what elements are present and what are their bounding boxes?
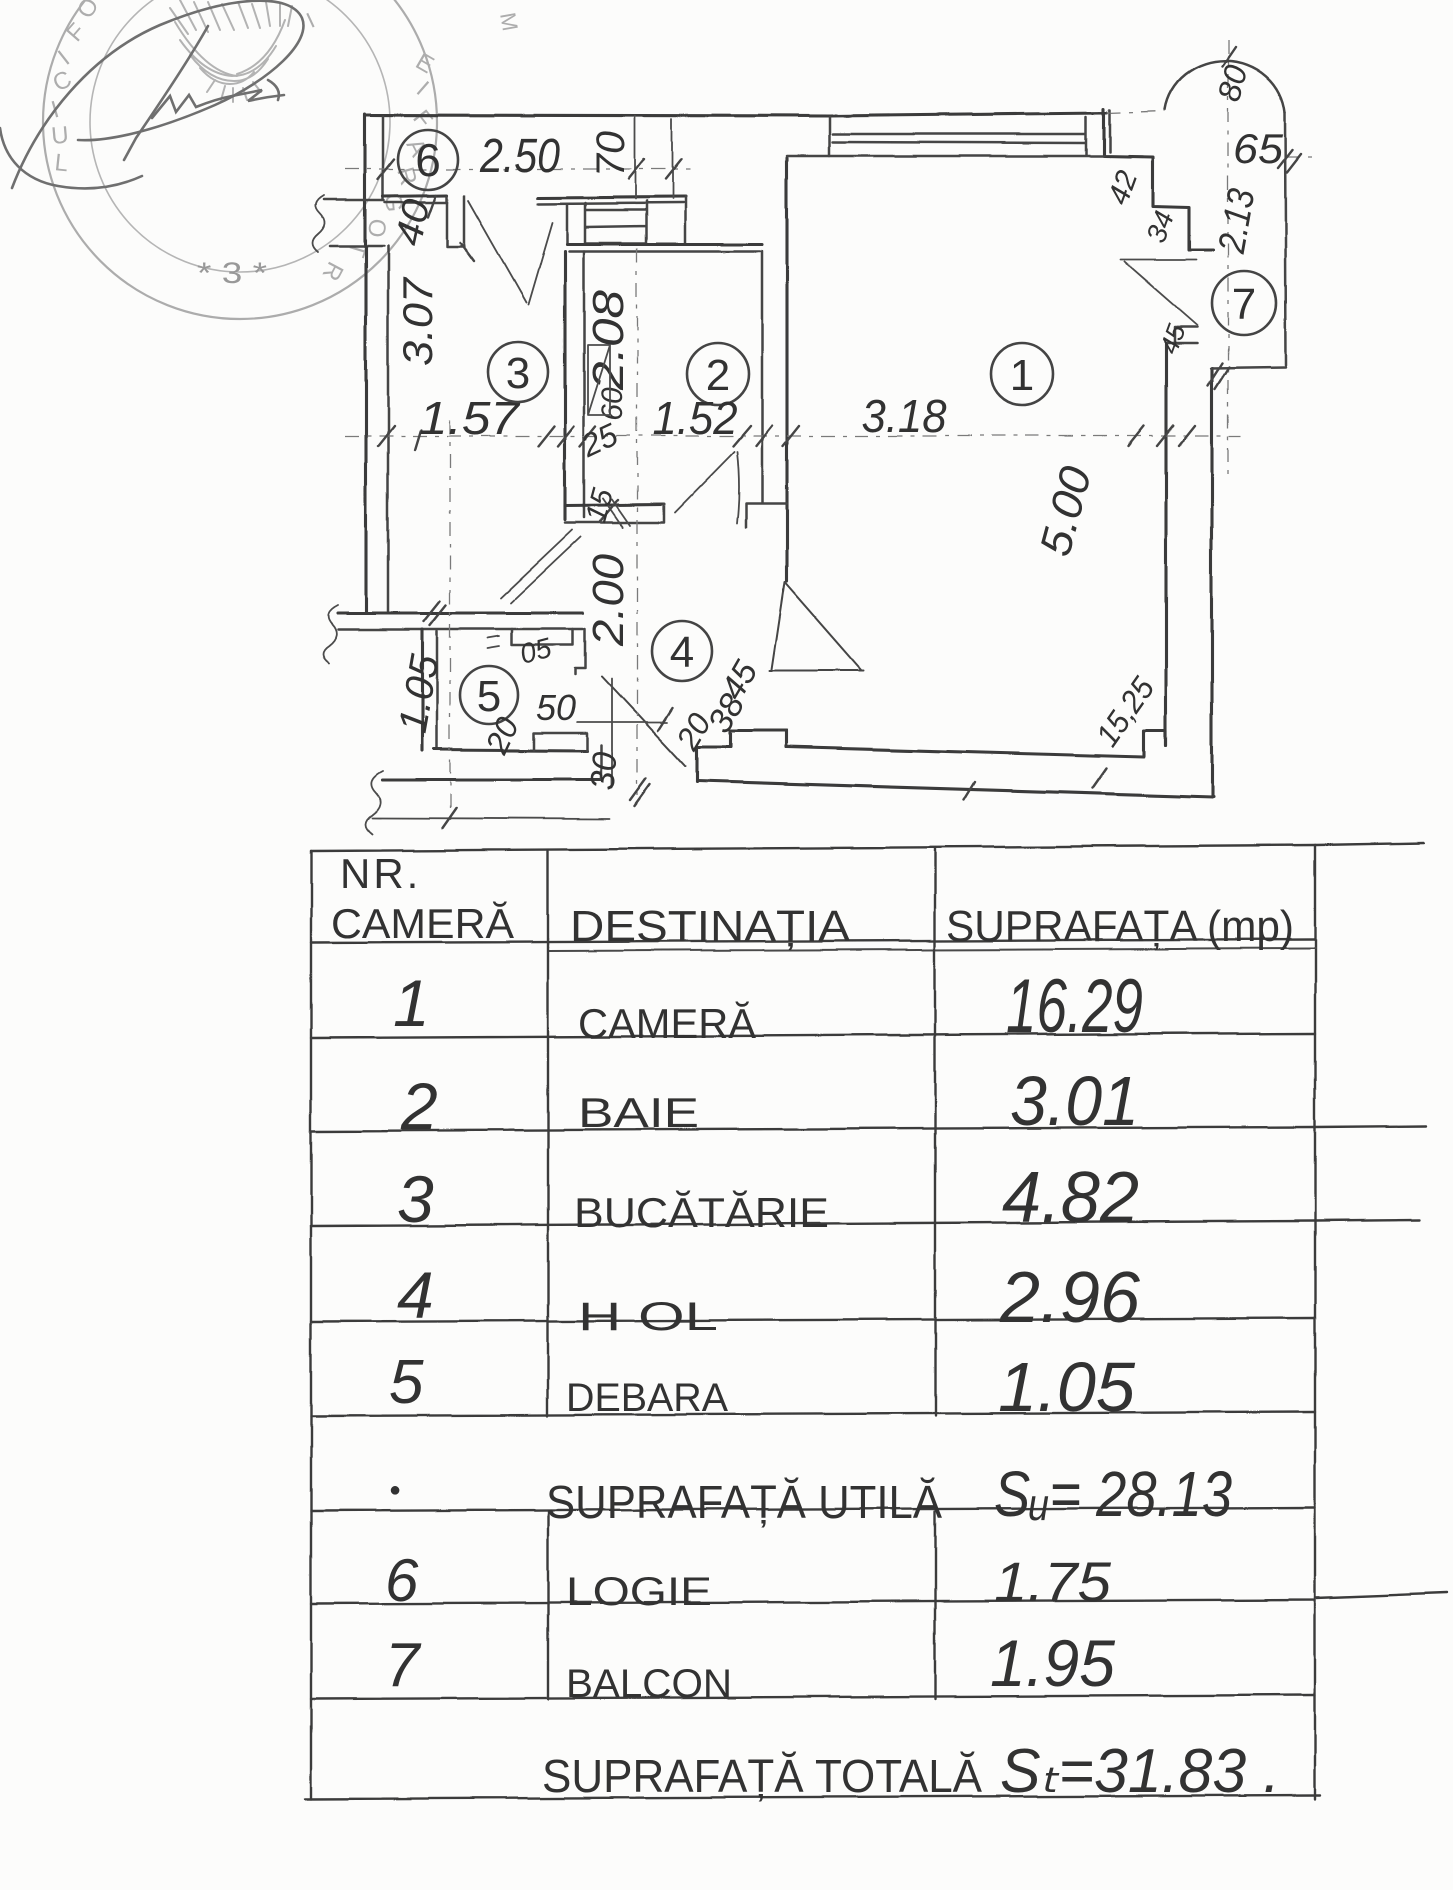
svg-text:2.00: 2.00: [584, 553, 633, 647]
svg-text:80: 80: [1210, 61, 1254, 105]
svg-text:SUPRAFAȚĂ UTILĂ: SUPRAFAȚĂ UTILĂ: [546, 1476, 942, 1528]
svg-text:BUCĂTĂRIE: BUCĂTĂRIE: [574, 1189, 829, 1236]
svg-text:H OL: H OL: [578, 1295, 718, 1339]
svg-text:1.05: 1.05: [998, 1348, 1136, 1426]
svg-text:3: 3: [506, 349, 530, 398]
svg-text:2.08: 2.08: [584, 289, 633, 391]
svg-text:3: 3: [397, 1162, 434, 1236]
svg-text:05: 05: [516, 632, 555, 670]
svg-text:CAMERĂ: CAMERĂ: [578, 1000, 756, 1047]
svg-text:BALCON: BALCON: [566, 1662, 732, 1706]
svg-text:F: F: [61, 18, 91, 47]
svg-text:5.00: 5.00: [1031, 461, 1102, 561]
svg-text:2.13: 2.13: [1211, 186, 1264, 257]
svg-text:6: 6: [385, 1547, 419, 1614]
svg-text:1.95: 1.95: [990, 1626, 1115, 1700]
svg-text:2.96: 2.96: [999, 1258, 1141, 1338]
svg-text:Sₜ=31.83 .: Sₜ=31.83 .: [1000, 1737, 1280, 1806]
svg-text:1.52: 1.52: [653, 392, 738, 444]
svg-text:15,25: 15,25: [1089, 670, 1162, 752]
svg-text:DEBARA: DEBARA: [566, 1376, 728, 1420]
svg-text:4: 4: [397, 1258, 434, 1332]
svg-text:3.18: 3.18: [862, 390, 947, 442]
svg-text:6: 6: [415, 134, 441, 186]
svg-text:34: 34: [1140, 207, 1180, 247]
svg-text:70: 70: [589, 131, 633, 177]
svg-text:25: 25: [575, 416, 624, 464]
svg-text:42: 42: [1102, 166, 1145, 209]
svg-text:4: 4: [670, 628, 694, 677]
svg-text:1.75: 1.75: [994, 1550, 1112, 1613]
svg-text:E: E: [411, 48, 438, 79]
svg-text:1.05: 1.05: [391, 651, 448, 736]
svg-text:L: L: [53, 149, 69, 177]
svg-text:CAMERĂ: CAMERĂ: [331, 900, 514, 947]
svg-text:I: I: [411, 76, 434, 101]
svg-text:T: T: [342, 238, 372, 260]
svg-text:2.50: 2.50: [479, 130, 560, 183]
svg-text:O: O: [72, 0, 105, 23]
svg-text:65: 65: [1233, 125, 1284, 172]
svg-text:I: I: [302, 7, 318, 32]
svg-text:40: 40: [388, 196, 439, 250]
svg-text:U: U: [50, 122, 70, 150]
svg-text:15: 15: [580, 485, 621, 526]
svg-text:SUPRAFAȚA (mp): SUPRAFAȚA (mp): [946, 902, 1294, 951]
svg-text:●: ●: [389, 1479, 401, 1501]
svg-text:R: R: [317, 257, 349, 285]
svg-text:F: F: [407, 105, 437, 133]
svg-text:3.01: 3.01: [1010, 1062, 1139, 1140]
svg-text:Sᵤ= 28.13: Sᵤ= 28.13: [994, 1458, 1232, 1530]
svg-text:C: C: [48, 65, 76, 97]
svg-text:BAIE: BAIE: [578, 1089, 699, 1136]
svg-text:DESTINAȚIA: DESTINAȚIA: [570, 902, 851, 951]
svg-text:LOGIE: LOGIE: [566, 1570, 712, 1614]
svg-text:7: 7: [385, 1631, 422, 1700]
svg-text:3.07: 3.07: [394, 276, 441, 366]
svg-text:M: M: [495, 11, 523, 33]
svg-text:7: 7: [1232, 280, 1256, 329]
svg-text:16.29: 16.29: [1006, 964, 1143, 1049]
svg-text:NR.: NR.: [340, 850, 421, 897]
svg-text:2: 2: [400, 1069, 438, 1143]
svg-text:1: 1: [393, 966, 430, 1040]
svg-text:30: 30: [583, 750, 624, 791]
svg-text:5: 5: [389, 1348, 424, 1417]
svg-text:45: 45: [1154, 320, 1192, 358]
svg-text:50: 50: [536, 687, 576, 728]
svg-text:SUPRAFAȚĂ TOTALĂ: SUPRAFAȚĂ TOTALĂ: [542, 1750, 982, 1802]
svg-text:1: 1: [1010, 351, 1034, 400]
svg-text:4.82: 4.82: [1002, 1158, 1139, 1238]
svg-text:* 3 *: * 3 *: [197, 257, 267, 290]
